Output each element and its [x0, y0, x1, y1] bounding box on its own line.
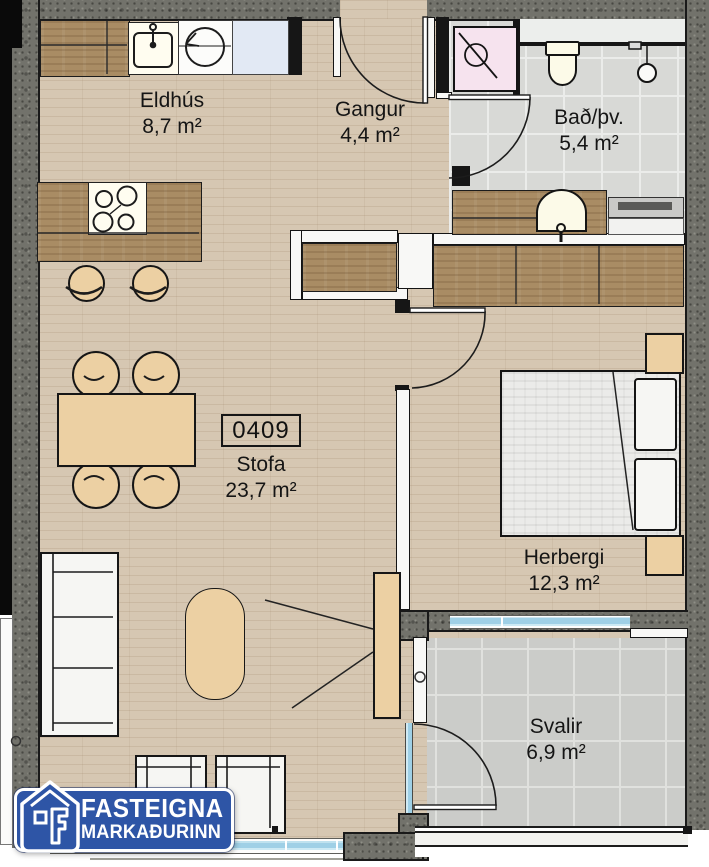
- rug: [185, 588, 245, 700]
- room-name: Eldhús: [140, 88, 204, 114]
- wall-right: [685, 0, 709, 830]
- unit-number-badge: 0409: [221, 414, 301, 447]
- room-area: 5,4 m²: [554, 131, 624, 157]
- wardrobe: [433, 245, 684, 307]
- railing-post: [683, 826, 692, 834]
- room-name: Bað/þv.: [554, 105, 624, 131]
- kitchen-sink-unit: [128, 22, 180, 75]
- room-name: Svalir: [526, 714, 586, 740]
- room-area: 8,7 m²: [140, 114, 204, 140]
- wall-bathroom-stub: [452, 166, 470, 186]
- room-name: Stofa: [225, 452, 296, 478]
- bedroom-window: [450, 615, 630, 629]
- kitchen-counter: [40, 20, 130, 77]
- room-label-bedroom: Herbergi 12,3 m²: [524, 545, 605, 597]
- dining-chair: [132, 351, 180, 399]
- logo-text: FASTEIGNA MARKAÐURINN: [81, 794, 224, 843]
- hall-closet: [302, 243, 397, 292]
- balcony-door-frame: [413, 637, 427, 723]
- wall-top-right: [427, 0, 685, 21]
- logo-line1: FASTEIGNA: [81, 794, 224, 822]
- balcony-railing: [415, 826, 688, 857]
- room-area: 23,7 m²: [225, 478, 296, 504]
- room-label-balcony: Svalir 6,9 m²: [526, 714, 586, 766]
- dining-chair: [72, 461, 120, 509]
- chair-foot: [272, 826, 278, 832]
- room-area: 6,9 m²: [526, 740, 586, 766]
- door-jamb-left: [333, 17, 341, 77]
- logo-line2: MARKAÐURINN: [81, 822, 224, 843]
- sofa: [40, 552, 119, 737]
- room-label-living: Stofa 23,7 m²: [225, 452, 296, 504]
- bathroom-wall-ledge: [518, 19, 685, 46]
- wall-bedroom-door-stub: [395, 300, 410, 313]
- wall-bathroom-west: [436, 17, 449, 95]
- bar-stool: [68, 265, 105, 302]
- bar-stool: [132, 265, 169, 302]
- door-jamb-right: [427, 17, 435, 98]
- wall-kitchen-stub: [287, 17, 302, 75]
- wall-cap: [436, 92, 452, 99]
- pillow: [634, 458, 677, 531]
- wall-living-south: [343, 832, 424, 861]
- nightstand: [645, 333, 684, 374]
- shower: [453, 26, 518, 92]
- wall-alcove-left: [290, 230, 302, 300]
- balcony-sill: [630, 628, 688, 638]
- washer-panel: [618, 202, 672, 210]
- pillow: [634, 378, 677, 451]
- cooktop: [88, 182, 147, 235]
- entrance-threshold: [340, 0, 427, 19]
- room-label-bathroom: Bað/þv. 5,4 m²: [554, 105, 624, 157]
- balcony-glass-door: [405, 723, 413, 813]
- room-name: Herbergi: [524, 545, 605, 571]
- room-label-kitchen: Eldhús 8,7 m²: [140, 88, 204, 140]
- dishwasher: [178, 20, 234, 75]
- floor-plan: Eldhús 8,7 m² Gangur 4,4 m² Bað/þv. 5,4 …: [0, 0, 709, 867]
- room-area: 12,3 m²: [524, 571, 605, 597]
- dining-chair: [72, 351, 120, 399]
- nightstand: [645, 535, 684, 576]
- bathroom-vanity: [452, 190, 607, 235]
- dining-table: [57, 393, 196, 467]
- neighbor-door: [0, 618, 13, 845]
- tv-stand: [373, 572, 401, 719]
- wall-alcove-top: [290, 230, 398, 243]
- washer-ledge: [608, 218, 684, 235]
- wall-left: [12, 0, 40, 848]
- dining-chair: [132, 461, 180, 509]
- outside-black-strip: [0, 0, 12, 615]
- house-logo-icon: [19, 779, 81, 853]
- outside-black-corner: [0, 0, 22, 48]
- room-area: 4,4 m²: [335, 123, 405, 149]
- fridge: [232, 20, 289, 75]
- room-label-hallway: Gangur 4,4 m²: [335, 97, 405, 149]
- wall-hall-bedroom: [398, 233, 433, 289]
- room-name: Gangur: [335, 97, 405, 123]
